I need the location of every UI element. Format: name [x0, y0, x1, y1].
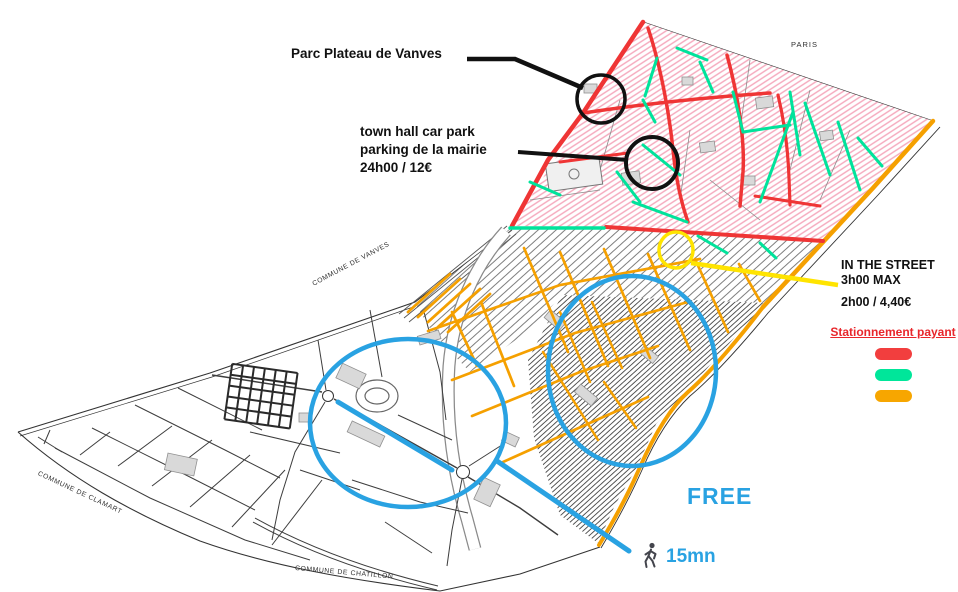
roundabout-east: [457, 466, 470, 479]
parc-label: Parc Plateau de Vanves: [291, 46, 442, 61]
townhall-label-line1: town hall car park: [360, 123, 487, 141]
legend-swatch-green: [875, 369, 912, 381]
legend-swatch-orange-fill: [875, 390, 912, 402]
legend-swatch-green-fill: [875, 369, 912, 381]
walking-person-icon: [646, 543, 656, 567]
paid-zone-north: [512, 22, 933, 241]
legend-title: Stationnement payant: [830, 325, 956, 339]
legend: Stationnement payant: [830, 325, 956, 402]
legend-swatch-red-fill: [875, 348, 912, 360]
stadium-oval: [356, 380, 398, 412]
map-canvas: [0, 0, 958, 592]
street-parking-label: IN THE STREET 3h00 MAX 2h00 / 4,40€: [841, 258, 935, 310]
roundabout-west: [323, 391, 334, 402]
street-parking-line1: IN THE STREET: [841, 258, 935, 273]
legend-swatch-orange: [875, 390, 912, 402]
street-parking-line2: 3h00 MAX: [841, 273, 935, 288]
grid-block: [224, 364, 297, 429]
legend-swatch-red: [875, 348, 912, 360]
free-label: FREE: [687, 483, 752, 510]
free-zone-ellipse-west: [310, 339, 506, 507]
walk-time-label: 15mn: [666, 546, 716, 568]
street-parking-line3: 2h00 / 4,40€: [841, 295, 935, 310]
walk-route-line-1: [338, 402, 452, 470]
vanves-parking-map: Parc Plateau de Vanves town hall car par…: [0, 0, 958, 592]
parc-arrow: [467, 59, 583, 88]
paris-label: PARIS: [791, 40, 818, 49]
townhall-label-line3: 24h00 / 12€: [360, 159, 487, 177]
townhall-label-line2: parking de la mairie: [360, 141, 487, 159]
townhall-label: town hall car park parking de la mairie …: [360, 123, 487, 177]
